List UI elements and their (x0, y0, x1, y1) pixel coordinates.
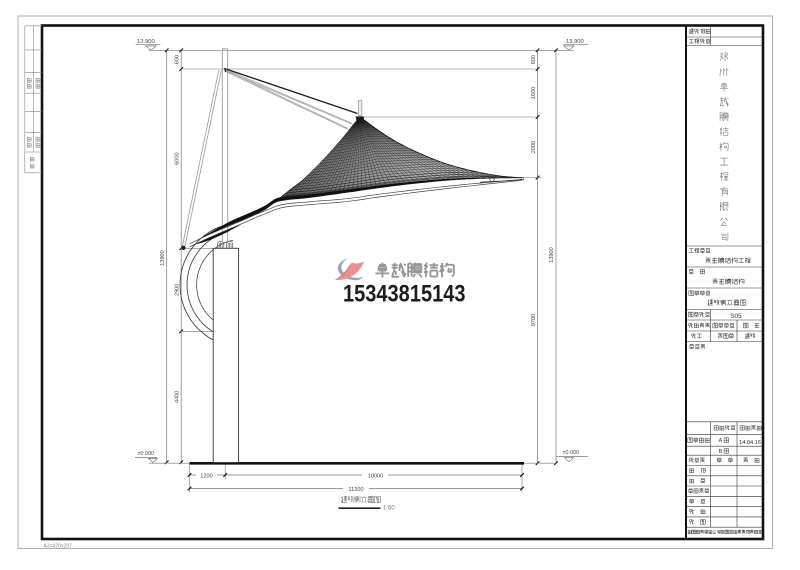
svg-text:1600: 1600 (531, 87, 537, 99)
svg-text:13.900: 13.900 (566, 39, 584, 45)
svg-text:13.900: 13.900 (137, 39, 155, 45)
svg-text:15343815143: 15343815143 (343, 281, 466, 308)
svg-text:10000: 10000 (368, 473, 384, 479)
svg-text:11200: 11200 (348, 487, 363, 493)
svg-text:14.04.16: 14.04.16 (739, 440, 761, 446)
svg-text:13900: 13900 (160, 250, 166, 266)
svg-text:B: B (719, 449, 723, 455)
svg-text:A3=420x297: A3=420x297 (44, 544, 72, 550)
svg-text:9700: 9700 (531, 314, 537, 326)
svg-text:1:60: 1:60 (383, 506, 395, 512)
svg-text:S05: S05 (730, 313, 742, 320)
svg-text:4400: 4400 (175, 391, 181, 403)
svg-text:A: A (719, 438, 723, 444)
svg-text:±0.000: ±0.000 (138, 451, 154, 457)
svg-text:600: 600 (175, 55, 181, 64)
svg-text:2000: 2000 (531, 141, 537, 153)
svg-text:6000: 6000 (175, 152, 181, 164)
svg-text:1200: 1200 (200, 473, 212, 479)
svg-text:600: 600 (531, 55, 537, 64)
svg-text:±0.000: ±0.000 (563, 450, 579, 456)
svg-text:13900: 13900 (549, 247, 555, 263)
